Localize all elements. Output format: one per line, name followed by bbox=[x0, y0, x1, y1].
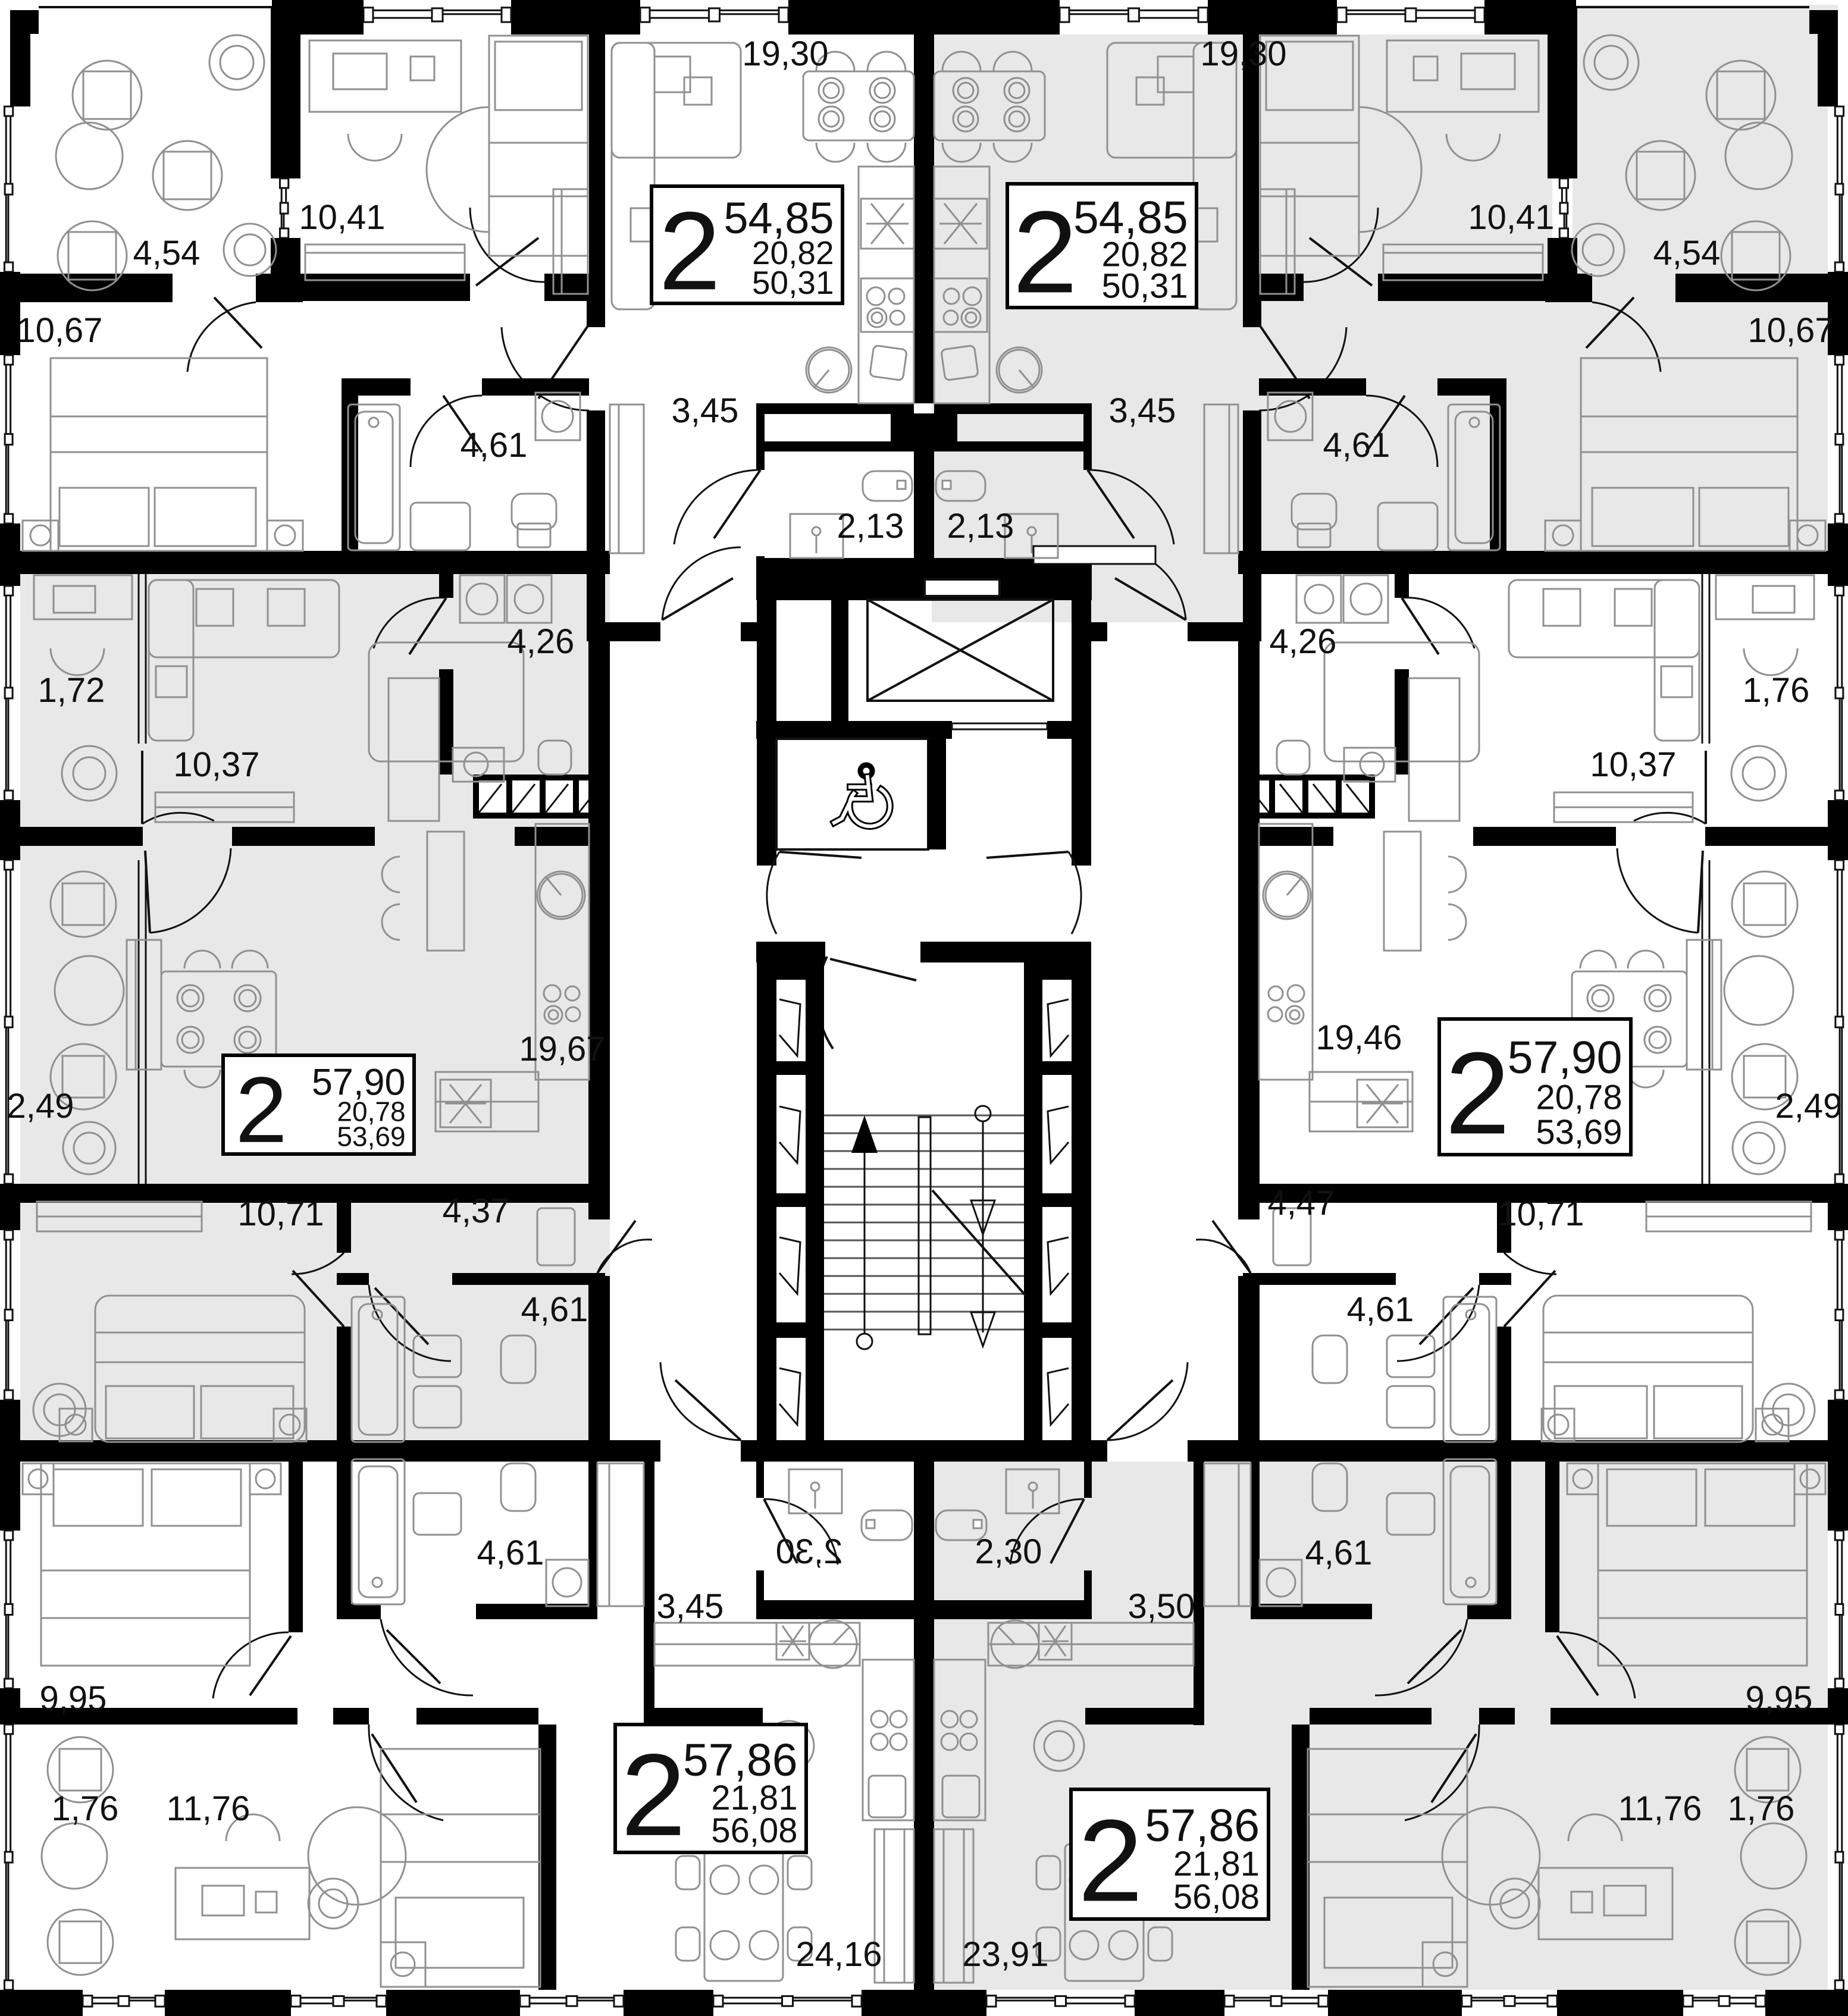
svg-text:3,45: 3,45 bbox=[672, 391, 739, 430]
svg-text:50,31: 50,31 bbox=[752, 264, 834, 301]
svg-text:10,37: 10,37 bbox=[1590, 745, 1676, 784]
svg-text:2: 2 bbox=[621, 1730, 686, 1860]
svg-text:2,49: 2,49 bbox=[1775, 1087, 1843, 1125]
svg-text:4,47: 4,47 bbox=[1268, 1184, 1335, 1222]
svg-text:2: 2 bbox=[1445, 1028, 1510, 1158]
svg-text:2,30: 2,30 bbox=[776, 1532, 843, 1571]
svg-text:2,30: 2,30 bbox=[975, 1532, 1042, 1571]
svg-text:4,61: 4,61 bbox=[477, 1534, 544, 1572]
svg-text:2,13: 2,13 bbox=[947, 507, 1014, 545]
svg-text:57,90: 57,90 bbox=[1508, 1032, 1623, 1083]
svg-text:53,69: 53,69 bbox=[1536, 1113, 1622, 1152]
svg-text:53,69: 53,69 bbox=[337, 1121, 405, 1152]
svg-text:4,37: 4,37 bbox=[443, 1192, 510, 1230]
svg-text:3,50: 3,50 bbox=[1128, 1587, 1195, 1626]
svg-text:19,30: 19,30 bbox=[1200, 35, 1286, 73]
svg-text:3,45: 3,45 bbox=[1109, 391, 1176, 430]
svg-text:24,16: 24,16 bbox=[795, 1935, 882, 1974]
svg-text:10,41: 10,41 bbox=[299, 198, 385, 237]
svg-text:4,61: 4,61 bbox=[1305, 1534, 1373, 1572]
svg-text:19,30: 19,30 bbox=[742, 35, 828, 73]
svg-text:2: 2 bbox=[659, 189, 721, 313]
svg-text:1,76: 1,76 bbox=[1743, 671, 1810, 710]
svg-text:10,71: 10,71 bbox=[237, 1194, 324, 1233]
svg-text:4,61: 4,61 bbox=[461, 426, 528, 465]
svg-text:4,54: 4,54 bbox=[133, 234, 201, 272]
svg-text:56,08: 56,08 bbox=[711, 1811, 797, 1850]
svg-text:4,61: 4,61 bbox=[1347, 1290, 1414, 1329]
svg-text:57,86: 57,86 bbox=[1145, 1800, 1260, 1851]
svg-text:1,76: 1,76 bbox=[1728, 1789, 1795, 1828]
svg-text:2: 2 bbox=[236, 1058, 287, 1162]
svg-text:10,37: 10,37 bbox=[173, 745, 259, 784]
svg-text:10,71: 10,71 bbox=[1498, 1194, 1584, 1233]
svg-text:19,46: 19,46 bbox=[1315, 1018, 1402, 1057]
svg-text:19,67: 19,67 bbox=[519, 1030, 605, 1068]
svg-text:1,72: 1,72 bbox=[38, 671, 105, 710]
svg-text:4,26: 4,26 bbox=[508, 622, 575, 661]
svg-text:10,67: 10,67 bbox=[16, 311, 102, 350]
svg-text:10,41: 10,41 bbox=[1468, 198, 1554, 237]
svg-text:4,61: 4,61 bbox=[521, 1290, 588, 1329]
svg-text:56,08: 56,08 bbox=[1173, 1878, 1260, 1917]
svg-text:4,26: 4,26 bbox=[1270, 622, 1337, 661]
svg-text:9,95: 9,95 bbox=[1746, 1679, 1813, 1718]
svg-text:2,13: 2,13 bbox=[837, 507, 904, 545]
svg-text:4,61: 4,61 bbox=[1323, 426, 1390, 465]
svg-text:4,54: 4,54 bbox=[1653, 234, 1721, 272]
svg-text:11,76: 11,76 bbox=[167, 1789, 250, 1828]
svg-text:50,31: 50,31 bbox=[1102, 266, 1188, 305]
svg-text:10,67: 10,67 bbox=[1747, 311, 1834, 350]
svg-text:1,76: 1,76 bbox=[52, 1789, 119, 1828]
svg-text:23,91: 23,91 bbox=[962, 1935, 1048, 1974]
svg-text:2: 2 bbox=[1078, 1795, 1143, 1926]
svg-text:3,45: 3,45 bbox=[657, 1587, 724, 1626]
svg-text:2: 2 bbox=[1013, 187, 1078, 317]
svg-text:9,95: 9,95 bbox=[40, 1679, 107, 1718]
svg-text:11,76: 11,76 bbox=[1618, 1789, 1702, 1828]
svg-text:2,49: 2,49 bbox=[7, 1087, 74, 1125]
svg-text:20,78: 20,78 bbox=[1536, 1078, 1622, 1117]
